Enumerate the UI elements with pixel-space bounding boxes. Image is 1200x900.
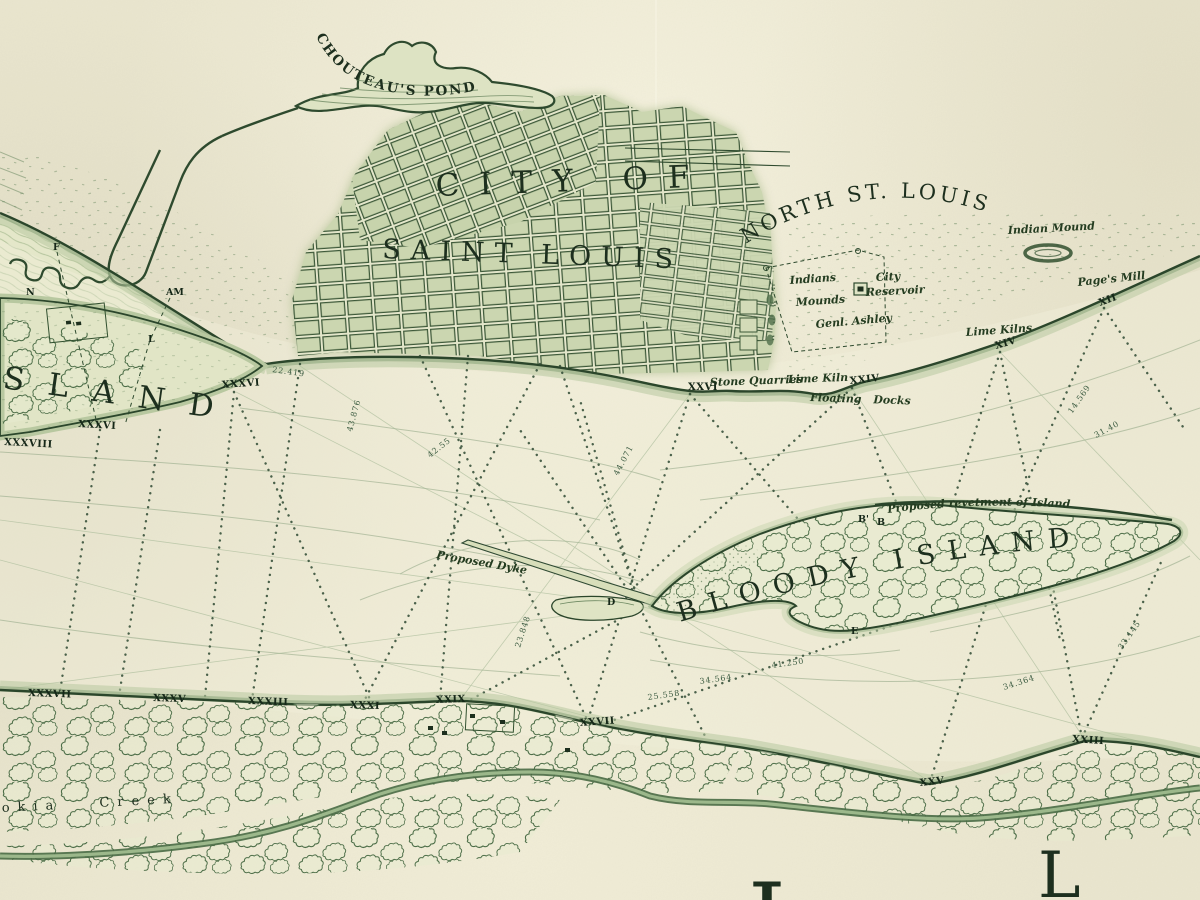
sheet-letter-partial: L <box>748 863 812 900</box>
point-letter: N <box>26 287 35 298</box>
point-letter: B' <box>858 514 869 525</box>
station-numeral: XXXIII <box>248 696 289 708</box>
historic-map-st-louis: CHOUTEAU'S POND CITY OF SAINT LOUIS NORT… <box>0 0 1200 900</box>
station-numeral: XXXVI <box>78 419 117 432</box>
station-numeral: XXVI <box>688 382 718 393</box>
station-numeral: XXXI <box>350 700 380 712</box>
station-numeral: XXIX <box>436 694 466 706</box>
sheet-letter: L <box>1038 839 1081 900</box>
station-numeral: XXXVII <box>28 688 72 701</box>
label-city-reservoir-1: City <box>875 270 902 284</box>
sandbar-islet <box>552 596 644 620</box>
north-st-louis-blocks <box>740 300 757 350</box>
point-letter: AM <box>165 287 184 298</box>
point-letter: E <box>851 626 858 637</box>
point-letter: B <box>877 517 885 528</box>
point-letter: D <box>607 597 615 608</box>
label-lime-kiln: Lime Kiln <box>787 371 849 386</box>
point-letter: F <box>53 242 60 253</box>
point-letter: L <box>148 334 155 345</box>
station-numeral: XXIII <box>1072 734 1105 747</box>
station-numeral: XXXV <box>153 693 186 705</box>
